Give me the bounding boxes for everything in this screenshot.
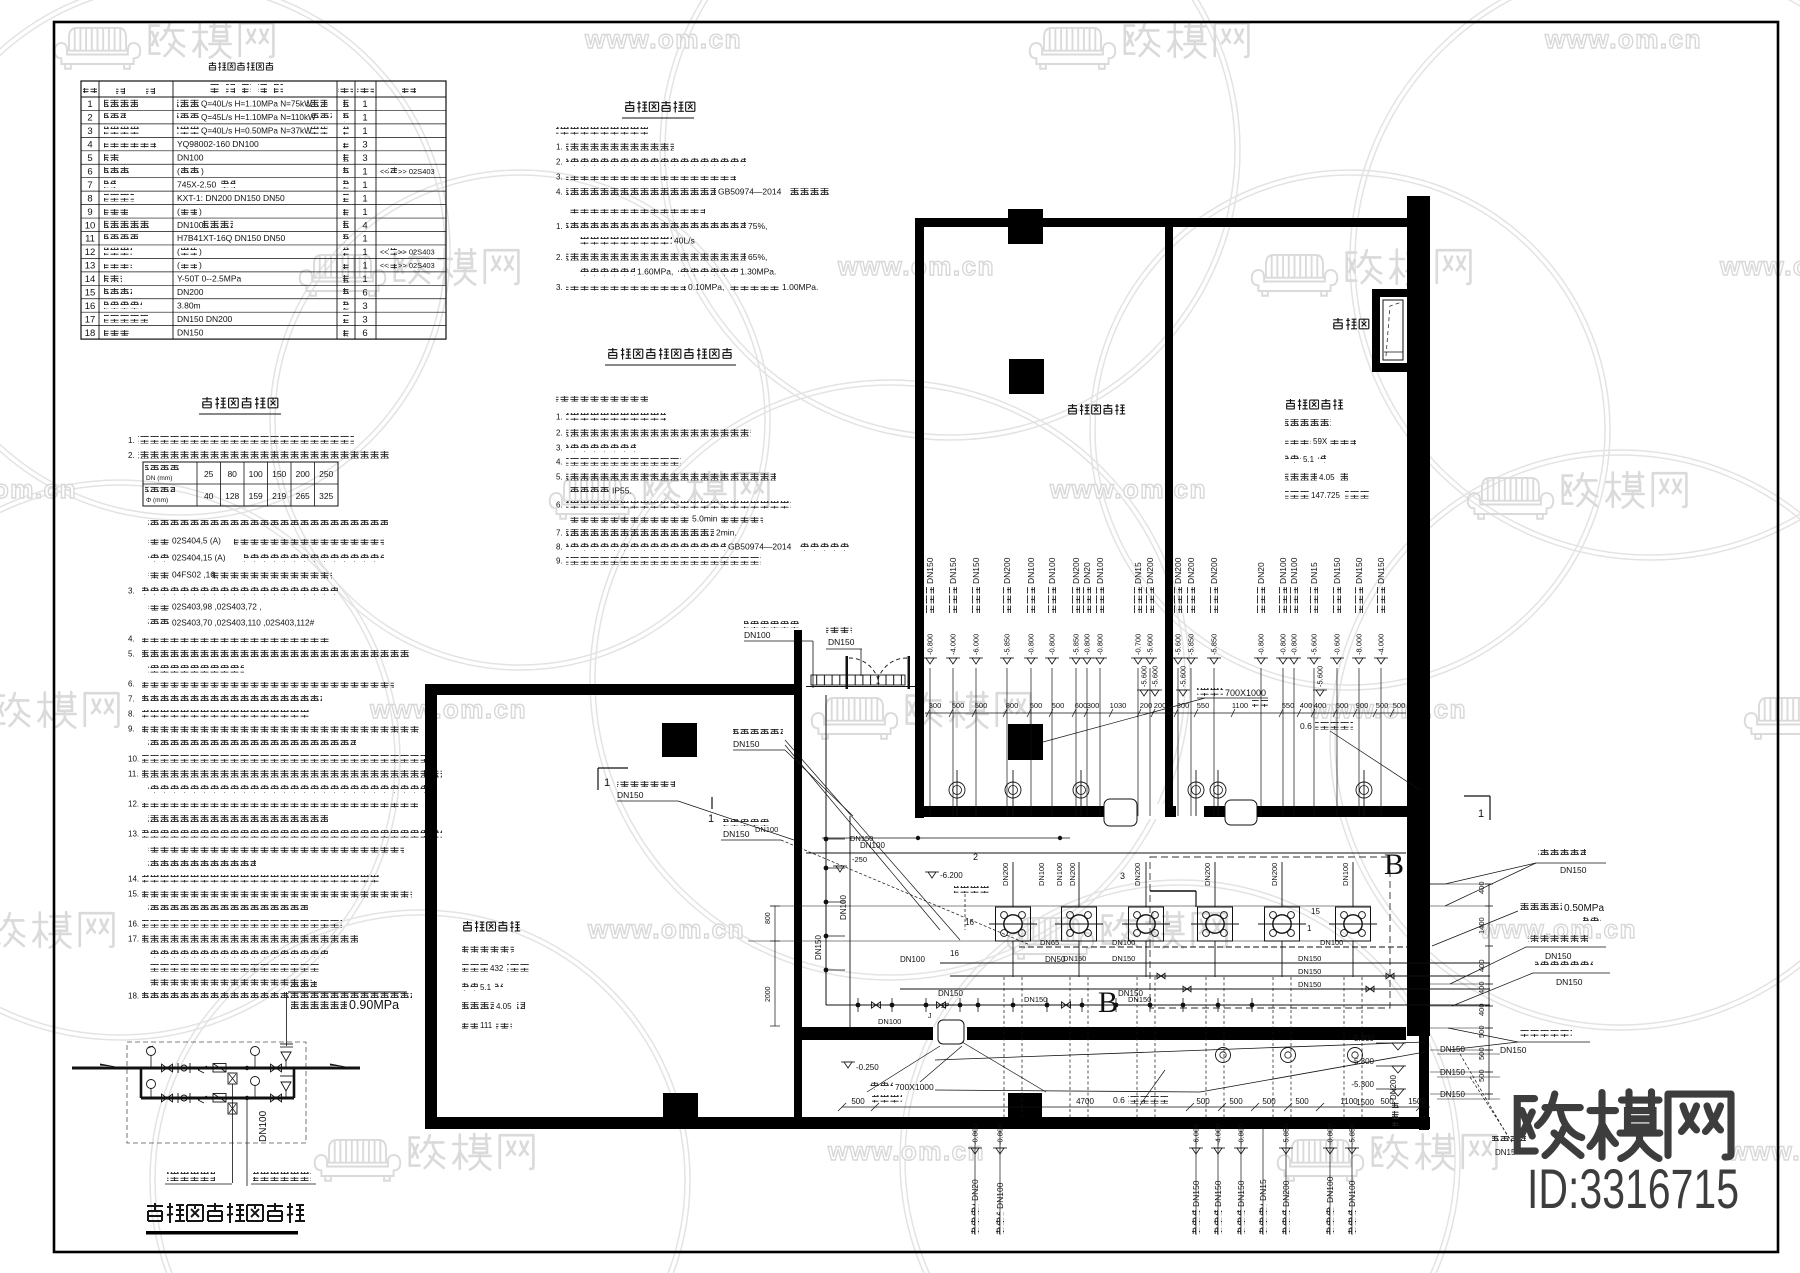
svg-text:550: 550 (1197, 701, 1210, 710)
svg-text:DN150: DN150 (1236, 1180, 1246, 1207)
svg-text:100: 100 (249, 469, 263, 479)
svg-text:-5.600: -5.600 (1179, 666, 1188, 687)
svg-text:www.om.cn: www.om.cn (0, 251, 2, 281)
svg-text:Q=45L/s H=1.10MPa N=110kW: Q=45L/s H=1.10MPa N=110kW (201, 113, 316, 122)
svg-text:59X: 59X (1313, 437, 1328, 446)
svg-text:-5.300: -5.300 (1351, 1080, 1374, 1089)
svg-text:DN150: DN150 (1112, 954, 1135, 963)
svg-text:1: 1 (362, 126, 367, 137)
svg-text:-6.000: -6.000 (1192, 1124, 1201, 1145)
svg-text:8: 8 (87, 193, 92, 204)
svg-text:6: 6 (87, 166, 92, 177)
svg-text:-0.800: -0.800 (1290, 634, 1299, 655)
svg-text:www.om.cn: www.om.cn (0, 474, 77, 504)
svg-text:265: 265 (296, 491, 310, 501)
svg-text:900: 900 (1356, 701, 1369, 710)
svg-text:): ) (199, 260, 202, 270)
svg-text:25: 25 (204, 469, 214, 479)
svg-text:-5.600: -5.600 (1316, 666, 1325, 687)
svg-text:DN100: DN100 (1347, 1180, 1357, 1207)
svg-text:DN150: DN150 (938, 989, 963, 998)
svg-text:700X1000: 700X1000 (1225, 688, 1266, 698)
svg-text:DN150: DN150 (1118, 989, 1143, 998)
svg-text:DN150: DN150 (1545, 951, 1572, 961)
svg-text:1.: 1. (556, 413, 563, 422)
svg-text:3.80m: 3.80m (177, 300, 201, 310)
svg-text:1: 1 (362, 261, 367, 272)
svg-text:J: J (928, 1013, 932, 1020)
svg-text:<<: << (380, 250, 388, 257)
svg-text:DN150: DN150 (1440, 1068, 1465, 1077)
svg-text:9: 9 (87, 207, 92, 218)
svg-text:IP55.: IP55. (612, 486, 632, 496)
svg-text:1: 1 (87, 99, 92, 110)
svg-text:DN150: DN150 (1191, 1180, 1201, 1207)
svg-text:DN150: DN150 (177, 327, 204, 337)
svg-text:1.00MPa.: 1.00MPa. (782, 282, 818, 292)
svg-text:5.0min: 5.0min (692, 514, 718, 524)
svg-text:13: 13 (85, 261, 96, 272)
svg-text:75%,: 75%, (748, 221, 767, 231)
svg-text:-0.250: -0.250 (856, 1063, 879, 1072)
svg-text:-5.300: -5.300 (1351, 1034, 1374, 1043)
svg-text:3: 3 (362, 314, 367, 325)
svg-text:745X-2.50: 745X-2.50 (177, 179, 216, 189)
svg-text:10: 10 (85, 220, 96, 231)
svg-text:DN200: DN200 (1209, 557, 1219, 584)
svg-text:1.: 1. (556, 143, 563, 152)
svg-text:Q=40L/s H=0.50MPa N=37kW: Q=40L/s H=0.50MPa N=37kW (201, 127, 312, 136)
svg-text:150: 150 (272, 469, 286, 479)
svg-text:2000: 2000 (765, 986, 772, 1002)
svg-text:2P: 2P (941, 1003, 950, 1010)
svg-text:DN100: DN100 (839, 895, 848, 920)
svg-text:-5.600: -5.600 (1140, 666, 1149, 687)
svg-text:16: 16 (950, 949, 959, 958)
svg-text:6: 6 (362, 328, 367, 339)
svg-text:DN200: DN200 (1071, 557, 1081, 584)
svg-text:1: 1 (362, 99, 367, 110)
svg-text:14.: 14. (128, 875, 139, 884)
svg-text:1: 1 (1307, 924, 1312, 933)
svg-text:1.30MPa.: 1.30MPa. (740, 267, 776, 277)
svg-text:DN150: DN150 (1440, 1090, 1465, 1099)
svg-text:-4.000: -4.000 (949, 634, 958, 655)
svg-text:500: 500 (1477, 1025, 1486, 1038)
svg-text:DN150: DN150 (1376, 557, 1386, 584)
svg-text:1100: 1100 (1232, 701, 1248, 710)
svg-text:-0.800: -0.800 (1027, 634, 1036, 655)
svg-text:DN100: DN100 (744, 630, 771, 640)
svg-text:-5.850: -5.850 (1187, 634, 1196, 655)
svg-text:200: 200 (1140, 701, 1153, 710)
svg-text:16: 16 (965, 918, 974, 927)
svg-text:1: 1 (708, 813, 714, 825)
svg-text:B: B (1384, 848, 1404, 881)
svg-text:DN150: DN150 (1354, 557, 1364, 584)
svg-text:9.: 9. (128, 725, 135, 734)
svg-text:1: 1 (362, 274, 367, 285)
svg-text:15: 15 (1311, 907, 1320, 916)
svg-text:DN150: DN150 (1440, 1045, 1465, 1054)
svg-text:DN150: DN150 (1063, 954, 1086, 963)
svg-text:4.: 4. (556, 188, 563, 197)
svg-text:GB50974—2014: GB50974—2014 (718, 187, 782, 197)
svg-text:DN100: DN100 (258, 1110, 269, 1142)
svg-text:DN200: DN200 (1281, 1180, 1291, 1207)
svg-text:500: 500 (1336, 701, 1349, 710)
svg-text:1: 1 (362, 207, 367, 218)
svg-text:1: 1 (362, 180, 367, 191)
svg-text:500: 500 (1295, 1097, 1309, 1106)
svg-text:0.90MPa: 0.90MPa (349, 998, 399, 1012)
svg-text:2.: 2. (556, 253, 563, 262)
svg-text:DN20: DN20 (970, 1179, 980, 1201)
svg-text:-4.000: -4.000 (1377, 634, 1386, 655)
svg-text:1: 1 (362, 166, 367, 177)
svg-text:-5.300: -5.300 (1351, 1057, 1374, 1066)
svg-text:-0.800: -0.800 (1083, 634, 1092, 655)
svg-text:DN20: DN20 (1082, 562, 1092, 584)
svg-text:-5.850: -5.850 (1003, 634, 1012, 655)
svg-text:-0.800: -0.800 (1279, 634, 1288, 655)
svg-text:DN200: DN200 (177, 287, 204, 297)
svg-text:6: 6 (362, 288, 367, 299)
svg-text:Y-50T 0--2.5MPa: Y-50T 0--2.5MPa (177, 274, 242, 284)
svg-text:DN100: DN100 (1341, 863, 1350, 886)
svg-text:www.om.cn: www.om.cn (827, 1136, 985, 1166)
svg-text:1.60MPa,: 1.60MPa, (637, 267, 673, 277)
svg-text:-5.850: -5.850 (1282, 1124, 1291, 1145)
svg-text:DN200: DN200 (1389, 1075, 1398, 1100)
svg-text:1500: 1500 (1356, 1098, 1374, 1107)
svg-text:500: 500 (1477, 1069, 1486, 1082)
svg-text:500: 500 (1393, 701, 1406, 710)
svg-text:DN150: DN150 (971, 557, 981, 584)
svg-text:500: 500 (1376, 701, 1389, 710)
svg-text:80: 80 (227, 469, 237, 479)
svg-text:2min.: 2min. (716, 528, 737, 538)
svg-text:3.: 3. (128, 587, 135, 596)
svg-text:3: 3 (87, 126, 92, 137)
svg-text:4.05: 4.05 (496, 1002, 512, 1011)
svg-text:159: 159 (249, 491, 263, 501)
svg-text:): ) (201, 166, 204, 176)
svg-text:DN150: DN150 (828, 637, 855, 647)
svg-text:DN200: DN200 (1133, 863, 1142, 886)
svg-text:4.: 4. (556, 458, 563, 467)
svg-text:ID:3316715: ID:3316715 (1527, 1157, 1739, 1220)
svg-text:1: 1 (1478, 808, 1484, 820)
svg-text:800: 800 (1006, 701, 1019, 710)
svg-text:DN200: DN200 (1186, 557, 1196, 584)
svg-text:www.om.cn: www.om.cn (369, 694, 527, 724)
svg-text:KXT-1: DN200 DN150 DN50: KXT-1: DN200 DN150 DN50 (177, 193, 285, 203)
svg-text:2.: 2. (128, 451, 135, 460)
svg-text:500: 500 (1262, 1097, 1276, 1106)
svg-text:YQ98002-160 DN100: YQ98002-160 DN100 (177, 139, 259, 149)
svg-text:7.: 7. (556, 529, 563, 538)
svg-text:-5.850: -5.850 (1348, 1124, 1357, 1145)
svg-text:-0.800: -0.800 (1257, 634, 1266, 655)
svg-text:11: 11 (85, 234, 95, 245)
svg-text:DN100: DN100 (1047, 557, 1057, 584)
svg-text:6.: 6. (556, 501, 563, 510)
svg-text:DN200: DN200 (1002, 557, 1012, 584)
svg-text:02S404,5 (A): 02S404,5 (A) (172, 536, 221, 546)
svg-text:04FS02 ,16: 04FS02 ,16 (172, 570, 215, 580)
svg-text:DN150: DN150 (1332, 557, 1342, 584)
svg-text:5.: 5. (556, 473, 563, 482)
svg-text:DN100: DN100 (755, 825, 778, 834)
svg-text:400: 400 (1477, 1003, 1486, 1016)
svg-text:-8.000: -8.000 (1355, 634, 1364, 655)
svg-text:-5.600: -5.600 (1151, 666, 1160, 687)
svg-text:219: 219 (272, 491, 286, 501)
svg-text:200: 200 (1154, 701, 1167, 710)
svg-text:325: 325 (319, 491, 333, 501)
svg-text:4.05: 4.05 (1319, 473, 1335, 482)
svg-text:-6.200: -6.200 (940, 871, 963, 880)
svg-text:-0.800: -0.800 (1326, 1124, 1335, 1145)
svg-text:300: 300 (1087, 701, 1100, 710)
svg-text:-4.000: -4.000 (1214, 1124, 1223, 1145)
svg-text:3: 3 (1120, 871, 1125, 881)
svg-text:0.10MPa,: 0.10MPa, (688, 282, 724, 292)
svg-text:12.: 12. (128, 800, 139, 809)
svg-text:7.: 7. (128, 695, 135, 704)
svg-text:3.: 3. (556, 283, 563, 292)
svg-text:17.: 17. (128, 935, 139, 944)
svg-text:DN65: DN65 (1040, 938, 1059, 947)
svg-text:DN100: DN100 (1112, 938, 1135, 947)
svg-text:40L/s: 40L/s (674, 236, 695, 246)
svg-text:DN50: DN50 (1045, 955, 1066, 964)
svg-text:128: 128 (225, 491, 239, 501)
svg-text:02S403,98 ,02S403,72 ,: 02S403,98 ,02S403,72 , (172, 602, 262, 612)
svg-text:3: 3 (362, 153, 367, 164)
svg-text:14: 14 (85, 274, 96, 285)
svg-text:<<: << (380, 263, 388, 270)
svg-text:DN15: DN15 (1309, 562, 1319, 584)
svg-text:2.: 2. (556, 429, 563, 438)
svg-text:>> 02S403: >> 02S403 (398, 248, 435, 257)
svg-text:DN200: DN200 (1068, 863, 1077, 886)
svg-text:2.: 2. (556, 158, 563, 167)
svg-text:-5.600: -5.600 (1174, 634, 1183, 655)
svg-text:-5.850: -5.850 (1072, 634, 1081, 655)
svg-text:-6.000: -6.000 (972, 634, 981, 655)
svg-text:): ) (199, 206, 202, 216)
svg-text:0.6: 0.6 (1300, 721, 1312, 731)
svg-text:DN100: DN100 (878, 1017, 901, 1026)
svg-text:Q=40L/s H=1.10MPa N=75kW: Q=40L/s H=1.10MPa N=75kW (201, 100, 312, 109)
svg-text:(: ( (177, 206, 180, 216)
svg-text:500: 500 (1030, 701, 1043, 710)
svg-text:DN150: DN150 (1024, 995, 1047, 1004)
svg-text:(: ( (177, 247, 180, 257)
svg-text:02S404,15 (A): 02S404,15 (A) (172, 553, 226, 563)
svg-text:500: 500 (1229, 1097, 1243, 1106)
svg-text:4700: 4700 (1076, 1097, 1094, 1106)
svg-text:www.om.cn: www.om.cn (584, 24, 742, 54)
svg-text:>> 02S403: >> 02S403 (398, 261, 435, 270)
svg-text:<<: << (380, 169, 388, 176)
svg-text:>> 02S403: >> 02S403 (398, 167, 435, 176)
svg-text:40: 40 (204, 491, 214, 501)
svg-text:-0.800: -0.800 (996, 1124, 1005, 1145)
svg-text:-0.600: -0.600 (1333, 634, 1342, 655)
svg-text:DN15: DN15 (1258, 1179, 1268, 1201)
svg-text:DN100: DN100 (1325, 1176, 1335, 1203)
svg-text:400: 400 (1314, 701, 1327, 710)
svg-text:12: 12 (85, 247, 96, 258)
svg-text:-5.600: -5.600 (1310, 634, 1319, 655)
svg-text:): ) (199, 247, 202, 257)
svg-text:DN150: DN150 (1298, 954, 1321, 963)
svg-text:Φ (mm): Φ (mm) (146, 497, 168, 504)
svg-text:7: 7 (87, 180, 92, 191)
svg-text:www.om.cn: www.om.cn (1544, 24, 1702, 54)
svg-text:8.: 8. (128, 710, 135, 719)
svg-text:2: 2 (87, 113, 92, 124)
svg-text:DN100: DN100 (900, 955, 925, 964)
svg-text:550: 550 (1282, 701, 1295, 710)
svg-text:DN150: DN150 (1500, 1045, 1527, 1055)
svg-text:DN100: DN100 (1095, 557, 1105, 584)
svg-text:DN150 DN200: DN150 DN200 (177, 314, 233, 324)
svg-text:DN100: DN100 (1055, 863, 1064, 886)
svg-text:DN200: DN200 (1203, 863, 1212, 886)
svg-text:11.: 11. (128, 770, 139, 779)
svg-text:DN150: DN150 (948, 557, 958, 584)
svg-text:13.: 13. (128, 830, 139, 839)
svg-text:1.: 1. (556, 222, 563, 231)
svg-text:-0.800: -0.800 (971, 1124, 980, 1145)
svg-text:1030: 1030 (1110, 701, 1127, 710)
svg-text:16: 16 (85, 301, 96, 312)
svg-text:18.: 18. (128, 992, 139, 1001)
svg-text:432: 432 (490, 964, 504, 973)
svg-text:www.om.cn: www.om.cn (587, 914, 745, 944)
svg-text:DN100: DN100 (1026, 557, 1036, 584)
svg-text:500: 500 (975, 701, 988, 710)
svg-text:65%,: 65%, (748, 252, 767, 262)
svg-text:16.: 16. (128, 920, 139, 929)
svg-text:DN150: DN150 (1556, 977, 1583, 987)
svg-text:-0.800: -0.800 (1096, 634, 1105, 655)
svg-text:www.om.cn: www.om.cn (1049, 474, 1207, 504)
svg-text:DN150: DN150 (1560, 865, 1587, 875)
svg-text:18: 18 (85, 328, 96, 339)
svg-text:DN150: DN150 (1298, 967, 1321, 976)
svg-text:GB50974—2014: GB50974—2014 (728, 542, 792, 552)
svg-text:4: 4 (87, 140, 92, 151)
svg-text:-5.850: -5.850 (1210, 634, 1219, 655)
svg-text:800: 800 (765, 912, 772, 924)
svg-text:0.6: 0.6 (1113, 1095, 1125, 1105)
svg-text:400: 400 (1477, 981, 1486, 994)
svg-text:DN15: DN15 (1133, 562, 1143, 584)
svg-text:H7B41XT-16Q DN150 DN50: H7B41XT-16Q DN150 DN50 (177, 233, 285, 243)
svg-text:DN150: DN150 (814, 935, 823, 960)
svg-text:DN200: DN200 (1001, 863, 1010, 886)
svg-text:DN150: DN150 (733, 739, 760, 749)
svg-text:1: 1 (362, 247, 367, 258)
svg-text:5.1: 5.1 (1303, 455, 1315, 464)
svg-text:DN100: DN100 (177, 220, 204, 230)
svg-text:DN150: DN150 (617, 790, 644, 800)
svg-text:5.1: 5.1 (480, 983, 492, 992)
svg-text:DN200: DN200 (1145, 557, 1155, 584)
svg-text:DN100: DN100 (1037, 863, 1046, 886)
svg-text:10.: 10. (128, 755, 139, 764)
svg-text:DN100: DN100 (1320, 938, 1343, 947)
svg-text:1: 1 (604, 777, 610, 789)
svg-text:0.50MPa: 0.50MPa (1564, 903, 1604, 914)
svg-text:-250: -250 (852, 855, 867, 864)
svg-text:200: 200 (296, 469, 310, 479)
svg-text:8.: 8. (556, 543, 563, 552)
svg-text:500: 500 (851, 1097, 865, 1106)
svg-text:3.: 3. (556, 444, 563, 453)
svg-text:DN150: DN150 (1213, 1180, 1223, 1207)
svg-text:1: 1 (362, 193, 367, 204)
svg-text:6.: 6. (128, 680, 135, 689)
svg-text:DN150: DN150 (925, 557, 935, 584)
svg-text:500: 500 (952, 701, 965, 710)
svg-text:4.: 4. (128, 635, 135, 644)
svg-text:700X1000: 700X1000 (895, 1082, 934, 1092)
svg-text:-0.800: -0.800 (1237, 1124, 1246, 1145)
svg-text:600: 600 (1075, 701, 1088, 710)
svg-text:3: 3 (362, 140, 367, 151)
svg-text:5: 5 (87, 153, 92, 164)
svg-text:(: ( (177, 166, 180, 176)
svg-text:5.: 5. (128, 650, 135, 659)
svg-text:4: 4 (362, 220, 367, 231)
svg-text:DN100: DN100 (177, 153, 204, 163)
svg-text:15.: 15. (128, 890, 139, 899)
svg-text:DN100: DN100 (860, 841, 885, 850)
svg-text:17: 17 (85, 314, 96, 325)
svg-text:-5.600: -5.600 (1146, 634, 1155, 655)
svg-text:15: 15 (85, 288, 96, 299)
svg-text:1.: 1. (128, 436, 135, 445)
svg-text:02S403,70 ,02S403,110 ,02S403,: 02S403,70 ,02S403,110 ,02S403,112# (172, 618, 315, 628)
svg-text:(: ( (177, 260, 180, 270)
svg-text:400: 400 (1477, 881, 1486, 894)
svg-text:3: 3 (362, 301, 367, 312)
svg-text:DN100: DN100 (1289, 557, 1299, 584)
svg-text:DN100: DN100 (995, 1182, 1005, 1209)
svg-text:3.: 3. (556, 173, 563, 182)
svg-text:DN150: DN150 (1298, 980, 1321, 989)
svg-text:9.: 9. (556, 557, 563, 566)
svg-text:1500: 1500 (1408, 1097, 1426, 1106)
svg-text:B: B (1098, 986, 1118, 1019)
svg-text:500: 500 (1196, 1097, 1210, 1106)
svg-text:300: 300 (929, 701, 942, 710)
svg-text:www.om.cn: www.om.cn (1719, 251, 1800, 281)
svg-text:-0.800: -0.800 (1048, 634, 1057, 655)
svg-text:500: 500 (1052, 701, 1065, 710)
svg-text:DN15: DN15 (1495, 1148, 1516, 1157)
svg-text:1: 1 (362, 113, 367, 124)
svg-text:DN200: DN200 (1270, 863, 1279, 886)
svg-text:DN200: DN200 (1173, 557, 1183, 584)
svg-text:-0.800: -0.800 (926, 634, 935, 655)
